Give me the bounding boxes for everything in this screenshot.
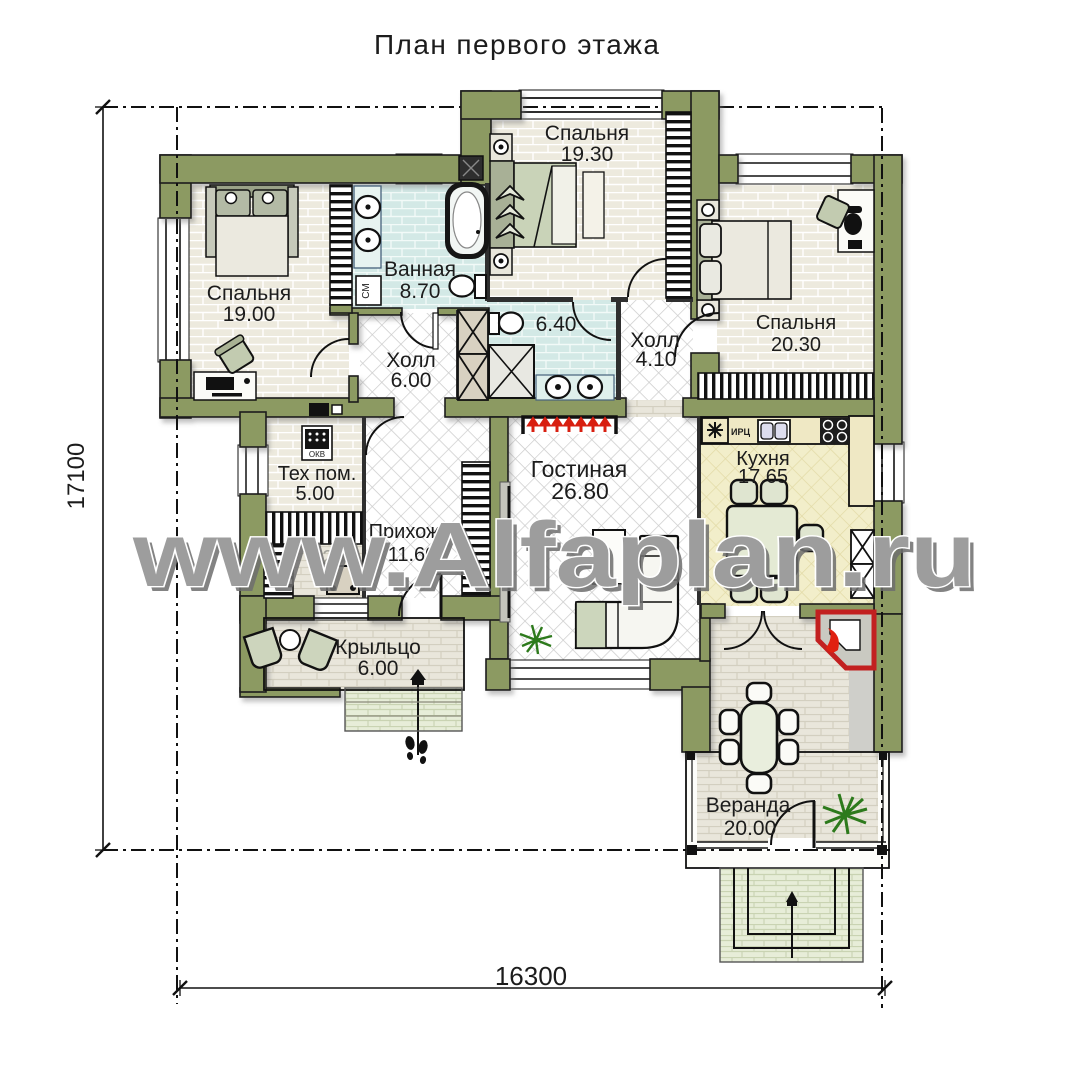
svg-text:ИРЦ: ИРЦ bbox=[731, 427, 750, 437]
svg-text:26.80: 26.80 bbox=[551, 478, 609, 504]
svg-text:19.30: 19.30 bbox=[561, 143, 614, 166]
svg-text:Спальня: Спальня bbox=[545, 122, 629, 145]
svg-text:19.00: 19.00 bbox=[223, 303, 276, 326]
svg-text:20.00: 20.00 bbox=[724, 817, 777, 840]
svg-text:СМ: СМ bbox=[361, 283, 372, 298]
svg-text:План первого этажа: План первого этажа bbox=[374, 29, 661, 60]
svg-text:17.65: 17.65 bbox=[738, 466, 788, 488]
svg-text:17100: 17100 bbox=[63, 443, 90, 510]
svg-text:20.30: 20.30 bbox=[771, 334, 821, 356]
svg-text:ОКВ: ОКВ bbox=[309, 450, 325, 459]
svg-text:Спальня: Спальня bbox=[207, 282, 291, 305]
svg-text:Крыльцо: Крыльцо bbox=[335, 636, 421, 659]
svg-text:6.40: 6.40 bbox=[536, 313, 577, 336]
svg-text:Тех пом.: Тех пом. bbox=[278, 463, 357, 485]
svg-text:4.10: 4.10 bbox=[636, 348, 677, 371]
svg-text:6.00: 6.00 bbox=[391, 369, 432, 392]
svg-text:5.00: 5.00 bbox=[296, 483, 335, 505]
svg-text:Веранда: Веранда bbox=[706, 794, 791, 817]
svg-text:Спальня: Спальня bbox=[756, 312, 836, 334]
svg-text:6.00: 6.00 bbox=[358, 657, 399, 680]
svg-text:8.70: 8.70 bbox=[400, 280, 441, 303]
svg-text:Ванная: Ванная bbox=[384, 258, 456, 281]
svg-text:16300: 16300 bbox=[495, 961, 567, 991]
svg-text:www.Alfaplan.ru: www.Alfaplan.ru bbox=[132, 504, 976, 606]
